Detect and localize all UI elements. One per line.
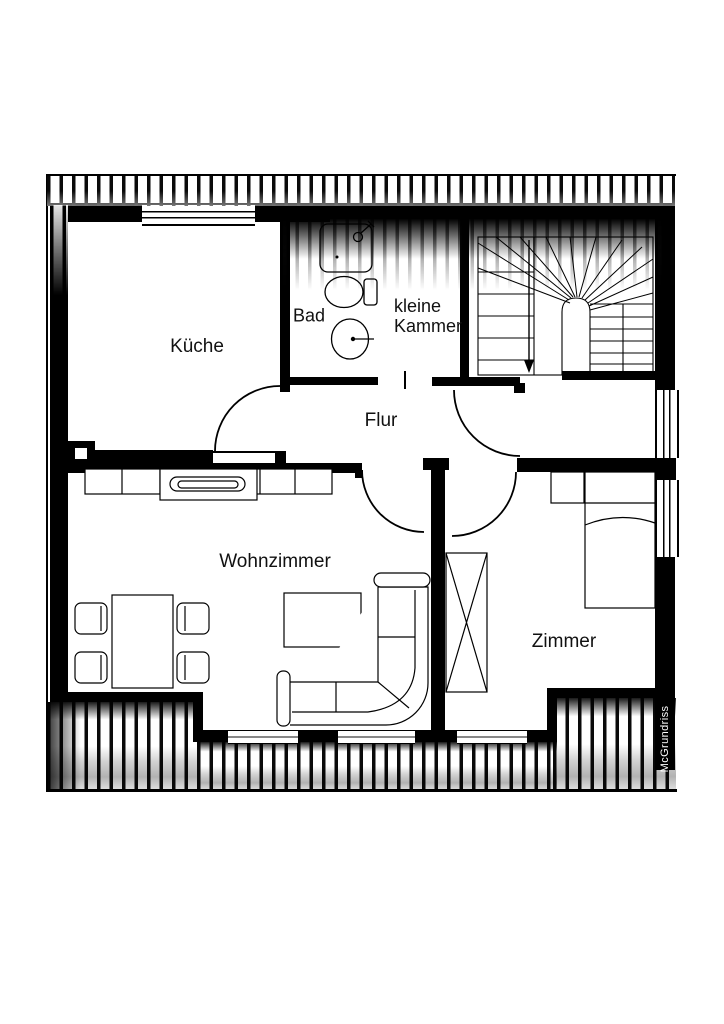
wohnzimmer-furniture [75,469,430,726]
wohnzimmer-door-arc [362,470,424,532]
stair-newel-arch [562,298,590,375]
room-label-wohnzimmer: Wohnzimmer [219,551,331,573]
room-label-flur: Flur [365,410,398,432]
watermark-mcgrundriss: McGrundriss [659,706,671,773]
plan-line-drawing [0,0,724,1024]
chair [75,603,107,634]
room-label-kammer-line1: kleine [394,296,462,316]
chair [177,603,209,634]
sofa-armrest [374,573,430,587]
bed [585,472,655,608]
left-wall-hatch-fade [50,205,68,295]
sofa-armrest [277,671,290,726]
roof-hatch-top-fade [47,191,675,206]
room-label-kammer-line2: Kammer [394,316,462,336]
room-label-kleine-kammer: kleine Kammer [394,296,462,336]
kitchen-door-arc [215,386,280,451]
zimmer-furniture [446,472,655,692]
chair [177,652,209,683]
wardrobe [446,553,487,692]
floorplan-canvas: Küche Bad kleine Kammer Flur Wohnzimmer … [0,0,724,1024]
door-swings [215,386,520,536]
stair-door-arc [454,390,520,456]
sideboard [85,469,332,500]
room-label-kueche: Küche [170,336,224,358]
zimmer-door-arc [452,472,516,536]
sink [332,319,375,359]
room-label-bad: Bad [293,306,325,327]
room-label-zimmer: Zimmer [532,631,596,653]
dining-table [112,595,173,688]
knee-wall-shadow [283,203,675,259]
chair [75,652,107,683]
dining-set [75,595,209,688]
nightstand [551,472,584,503]
